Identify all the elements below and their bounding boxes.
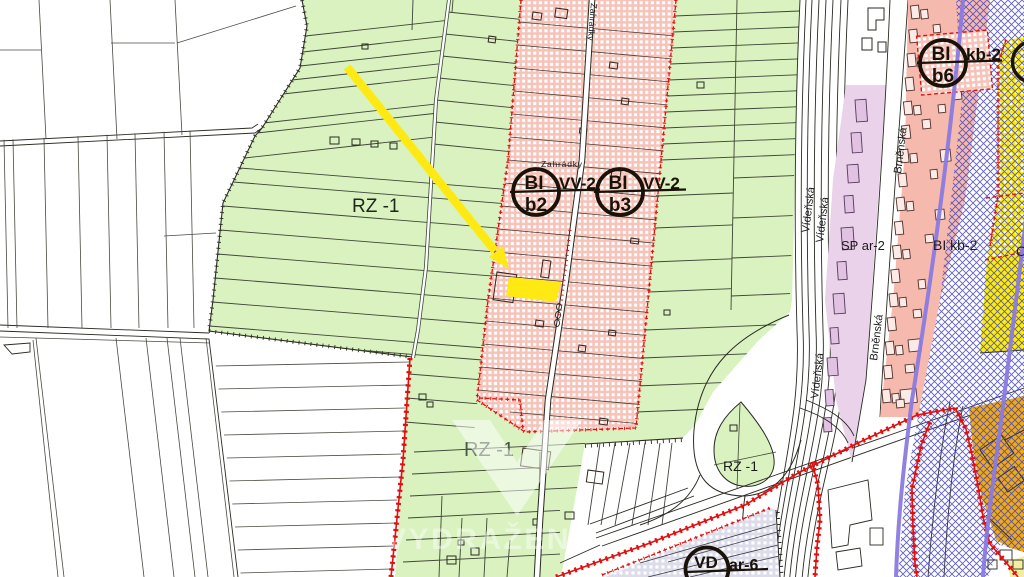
svg-text:b6: b6 — [932, 66, 954, 87]
svg-text:VV-2: VV-2 — [559, 174, 596, 193]
svg-text:Zahrádky: Zahrádky — [541, 159, 583, 169]
svg-text:BI kb-2: BI kb-2 — [933, 237, 978, 253]
svg-text:O: O — [1016, 243, 1024, 259]
svg-text:b3: b3 — [609, 195, 631, 216]
svg-text:ar-6: ar-6 — [729, 557, 758, 574]
svg-text:b2: b2 — [525, 195, 547, 216]
svg-text:RZ -1: RZ -1 — [723, 458, 758, 474]
svg-text:VYDRAŽENO: VYDRAŽENO — [386, 522, 597, 556]
svg-text:BI: BI — [932, 44, 951, 65]
svg-text:RZ -1: RZ -1 — [352, 196, 400, 217]
svg-text:SP ar-2: SP ar-2 — [841, 238, 885, 253]
svg-text:VD: VD — [694, 553, 718, 572]
svg-text:kb-2: kb-2 — [966, 45, 1001, 64]
svg-text:VV-2: VV-2 — [643, 174, 680, 193]
svg-text:BI: BI — [525, 173, 544, 194]
svg-text:BI: BI — [609, 173, 628, 194]
